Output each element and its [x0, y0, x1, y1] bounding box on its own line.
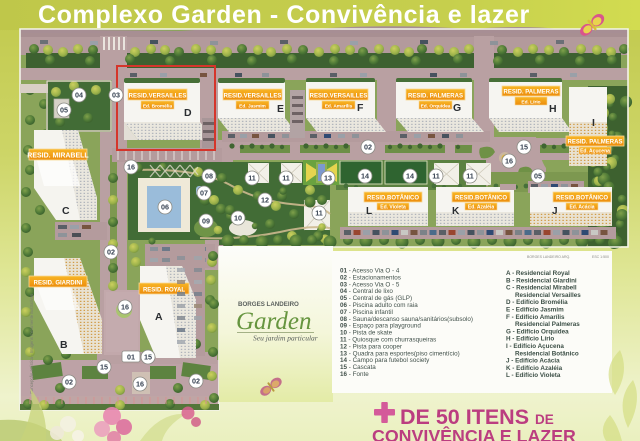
svg-text:12: 12: [261, 196, 269, 205]
svg-text:A - Residencial Royal: A - Residencial Royal: [506, 270, 570, 277]
svg-text:C: C: [62, 205, 70, 217]
svg-text:15: 15: [144, 353, 152, 362]
svg-text:RESID.BOTÂNICO: RESID.BOTÂNICO: [455, 195, 507, 202]
svg-text:04: 04: [75, 91, 83, 100]
svg-text:16 - Fonte: 16 - Fonte: [340, 371, 369, 378]
svg-text:01: 01: [127, 352, 135, 361]
svg-text:RESID. PALMERAS: RESID. PALMERAS: [408, 94, 463, 100]
svg-text:C - Residencial Mirabell: C - Residencial Mirabell: [506, 285, 577, 292]
svg-text:Ed. Jasmim: Ed. Jasmim: [239, 103, 266, 109]
svg-text:Residencial Versailles: Residencial Versailles: [515, 292, 581, 299]
svg-text:F: F: [357, 102, 364, 114]
svg-text:03: 03: [112, 91, 120, 100]
svg-text:Concepção artística - Imagens: Concepção artística - Imagens meramente …: [29, 294, 34, 394]
svg-text:RESID.BOTÂNICO: RESID.BOTÂNICO: [556, 195, 608, 202]
svg-text:RESID. PALMERAS: RESID. PALMERAS: [568, 140, 623, 146]
svg-text:Seu jardim particular: Seu jardim particular: [253, 334, 318, 343]
svg-text:D - Edifício Bromélia: D - Edifício Bromélia: [506, 299, 568, 306]
svg-text:H: H: [549, 103, 557, 115]
svg-text:02: 02: [364, 143, 372, 152]
svg-text:CONVIVÊNCIA E LAZER: CONVIVÊNCIA E LAZER: [372, 425, 576, 441]
svg-text:Ed. Amarílis: Ed. Amarílis: [325, 103, 353, 109]
svg-text:B - Residencial Giardini: B - Residencial Giardini: [506, 277, 577, 284]
svg-text:13: 13: [324, 174, 332, 183]
svg-text:Ed. Lírio: Ed. Lírio: [521, 99, 540, 105]
svg-text:RESID. PALMERAS: RESID. PALMERAS: [504, 90, 559, 96]
svg-text:14: 14: [406, 172, 414, 181]
svg-text:L - Edifício Violeta: L - Edifício Violeta: [506, 372, 561, 379]
svg-text:Ed. Azaléia: Ed. Azaléia: [468, 205, 494, 211]
svg-text:11: 11: [466, 172, 474, 181]
svg-text:D: D: [184, 107, 192, 119]
svg-text:J - Edifício Acácia: J - Edifício Acácia: [506, 358, 560, 365]
svg-text:02: 02: [107, 248, 115, 257]
svg-text:Ed. Açucena: Ed. Açucena: [580, 149, 610, 155]
svg-text:Residencial Palmeras: Residencial Palmeras: [515, 321, 580, 328]
svg-text:11: 11: [432, 172, 440, 181]
svg-text:Garden: Garden: [236, 308, 311, 335]
svg-text:BORGES LANDEIRO ARQ.: BORGES LANDEIRO ARQ.: [527, 255, 570, 259]
svg-text:G: G: [453, 102, 461, 114]
svg-text:11: 11: [315, 209, 323, 218]
svg-text:A: A: [155, 311, 163, 323]
svg-text:I: I: [592, 117, 595, 129]
svg-text:10: 10: [234, 214, 242, 223]
svg-text:Ed. Orquídea: Ed. Orquídea: [421, 103, 451, 109]
svg-text:14: 14: [361, 172, 369, 181]
svg-text:RESID.VERSAILLES: RESID.VERSAILLES: [310, 94, 368, 100]
svg-text:K: K: [452, 206, 460, 217]
svg-text:L: L: [366, 206, 372, 217]
svg-text:RESID.VERSAILLES: RESID.VERSAILLES: [129, 94, 187, 100]
svg-text:15: 15: [520, 143, 528, 152]
svg-text:06: 06: [161, 203, 169, 212]
svg-text:K - Edifício Azaléia: K - Edifício Azaléia: [506, 365, 563, 372]
svg-text:RESID.VERSAILLES: RESID.VERSAILLES: [224, 94, 282, 100]
svg-text:ESC 1:500: ESC 1:500: [592, 255, 609, 259]
svg-text:Complexo Garden - Convivência: Complexo Garden - Convivência e lazer: [38, 1, 530, 29]
svg-text:08: 08: [205, 172, 213, 181]
svg-text:07: 07: [200, 189, 208, 198]
svg-text:Ed. Bromélia: Ed. Bromélia: [143, 103, 173, 109]
svg-text:05: 05: [60, 106, 68, 115]
svg-text:Residencial Botânico: Residencial Botânico: [515, 350, 579, 357]
svg-text:16: 16: [136, 380, 144, 389]
svg-text:16: 16: [505, 157, 513, 166]
svg-text:E: E: [277, 103, 284, 115]
svg-text:15: 15: [100, 363, 108, 372]
svg-text:RESID. GIARDINI: RESID. GIARDINI: [34, 281, 83, 287]
svg-text:02: 02: [65, 378, 73, 387]
svg-text:11: 11: [282, 174, 290, 183]
svg-text:Ed. Acácia: Ed. Acácia: [569, 205, 594, 211]
svg-text:11: 11: [248, 174, 256, 183]
svg-text:Ed. Violeta: Ed. Violeta: [380, 205, 406, 211]
svg-text:E - Edifício Jasmim: E - Edifício Jasmim: [506, 307, 564, 314]
svg-text:B: B: [60, 339, 68, 351]
svg-text:I - Edifício Açucena: I - Edifício Açucena: [506, 343, 564, 350]
svg-text:09: 09: [202, 217, 210, 226]
svg-text:16: 16: [121, 303, 129, 312]
svg-text:G - Edifício Orquídea: G - Edifício Orquídea: [506, 328, 569, 335]
svg-text:02: 02: [192, 377, 200, 386]
svg-text:16: 16: [127, 163, 135, 172]
svg-text:05: 05: [534, 172, 542, 181]
svg-text:RESID.BOTÂNICO: RESID.BOTÂNICO: [367, 195, 419, 202]
svg-text:F - Edifício Amarílis: F - Edifício Amarílis: [506, 314, 565, 321]
svg-text:J: J: [552, 206, 558, 217]
svg-text:BORGES LANDEIRO: BORGES LANDEIRO: [238, 301, 299, 308]
svg-text:RESID. MIRABELL: RESID. MIRABELL: [27, 153, 89, 160]
svg-text:H - Edifício Lírio: H - Edifício Lírio: [506, 336, 554, 343]
